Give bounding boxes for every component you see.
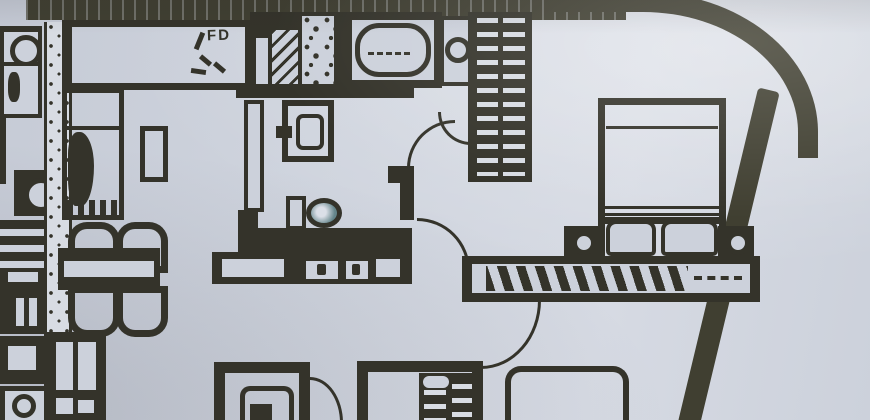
appliance-detail <box>8 72 20 102</box>
adjacent-unit-slats <box>0 220 44 268</box>
hall-wall-stub <box>400 166 414 220</box>
side-table <box>140 126 168 182</box>
sink-tap-icon <box>276 126 292 138</box>
cabinet-slot <box>78 342 96 390</box>
table-lamp-icon <box>572 231 596 255</box>
bathroom-door <box>244 100 264 212</box>
counter-glyph <box>352 264 360 275</box>
door-swing-bedroom <box>481 300 541 369</box>
cabinet-slot <box>56 342 73 390</box>
wardrobe-rod <box>694 276 742 280</box>
cabinet-slot <box>78 400 94 413</box>
wardrobe-slats <box>424 390 446 420</box>
bathtub <box>355 23 431 77</box>
shelf-column <box>477 18 498 176</box>
cabinet-slot <box>16 298 24 326</box>
wardrobe-notch <box>423 376 449 388</box>
burner-icon <box>10 35 42 67</box>
shower-drain <box>250 404 272 420</box>
sink-basin <box>296 114 324 150</box>
cabinet-slot <box>56 398 73 414</box>
kitchen-cabinets <box>44 332 106 420</box>
toilet-tank <box>286 196 306 230</box>
toilet-bowl <box>306 198 342 228</box>
pillow <box>661 220 718 256</box>
cabinet-slot <box>8 272 38 282</box>
bed-pillow-line <box>67 126 119 130</box>
bathroom-left-wall <box>238 210 258 256</box>
shaft-slot <box>256 38 268 86</box>
counter-glyph <box>317 264 326 275</box>
dining-chair <box>116 290 168 337</box>
bathtub-water-line <box>368 52 410 55</box>
dining-chair <box>68 290 120 337</box>
wardrobe-slats <box>452 384 472 420</box>
counter-slot <box>222 259 284 277</box>
dining-table <box>58 248 160 290</box>
blanket-line <box>602 206 722 209</box>
bathroom-top-wall <box>236 84 414 98</box>
floor-plan: FD <box>0 0 870 420</box>
pillow <box>606 220 656 256</box>
blanket-line <box>602 213 722 216</box>
door-swing-shower-room <box>310 377 343 420</box>
bed-foot-hatch <box>67 200 119 215</box>
fd-label: FD <box>207 27 232 45</box>
bottom-room-furniture <box>505 366 629 420</box>
cabinet-slot <box>29 298 37 326</box>
adjacent-unit-wall <box>0 118 6 184</box>
duct-shaft <box>302 16 334 88</box>
shelf-column <box>503 18 525 176</box>
table-lamp-icon <box>726 231 750 255</box>
drain-icon <box>12 394 36 418</box>
bed-top-line <box>606 126 718 129</box>
hanging-clothes-icon <box>486 266 688 291</box>
duct-shaft <box>272 30 298 86</box>
counter-slot <box>376 259 400 277</box>
door-swing-hall <box>407 120 455 168</box>
cabinet-slot <box>8 346 36 370</box>
